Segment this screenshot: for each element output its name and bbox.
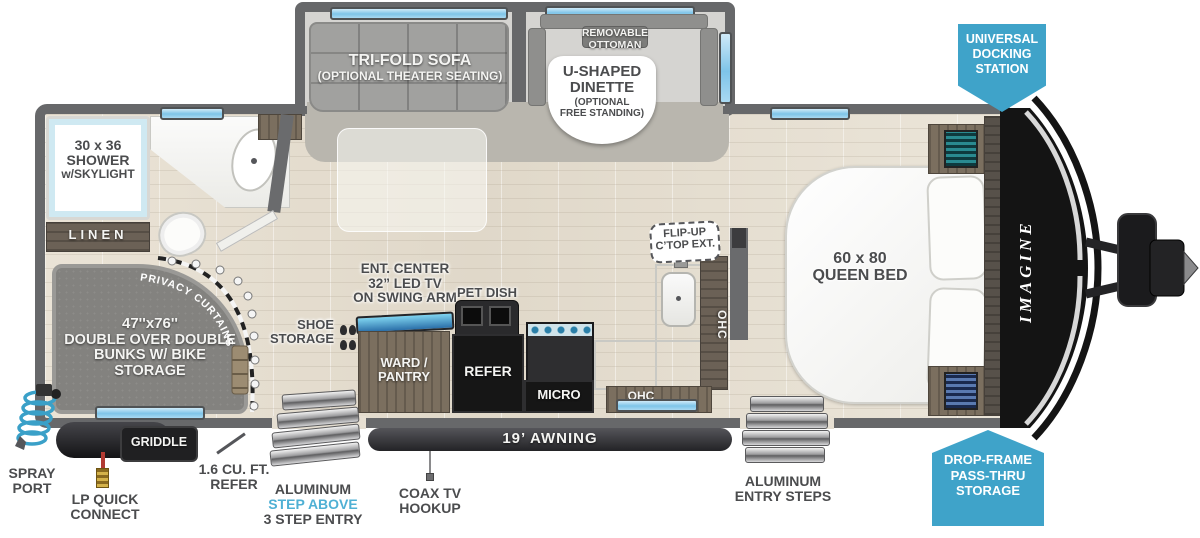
kitchen-window — [616, 399, 698, 412]
privacy-curtain-graphic: PRIVACY CURTAINS — [128, 252, 278, 422]
drop-frame-storage-badge: DROP-FRAMEPASS-THRUSTORAGE — [932, 430, 1044, 526]
shower-label: 30 x 36 SHOWER w/SKYLIGHT — [48, 138, 148, 181]
kitchen-sink-drain — [676, 296, 681, 301]
spray-port-mount — [36, 384, 52, 396]
living-area-rug — [337, 128, 487, 232]
queen-bed-label: 60 x 80 QUEEN BED — [800, 250, 920, 285]
linen-label: LINEN — [46, 228, 150, 242]
floorplan-canvas: REMOVABLEOTTOMAN TRI-FOLD SOFA (OPTIONAL… — [0, 0, 1200, 538]
awning-label: 19’ AWNING — [368, 431, 732, 448]
nightstand-top-shelf — [944, 130, 978, 168]
bed-pillow — [926, 175, 988, 281]
outdoor-refer-pointer — [216, 433, 246, 455]
refer-label: REFER — [452, 364, 524, 379]
shoe-storage-label: SHOESTORAGE — [268, 318, 334, 346]
dinette-bench-left — [528, 28, 546, 106]
sink-drain — [251, 158, 257, 164]
shoe-icon — [340, 340, 347, 350]
ottoman-label: REMOVABLEOTTOMAN — [560, 28, 670, 51]
svg-text:PRIVACY CURTAINS: PRIVACY CURTAINS — [139, 271, 235, 348]
dinette-window-side — [719, 32, 732, 104]
shoe-icon — [340, 325, 347, 335]
imagine-brand-logo: IMAGINE — [1016, 196, 1046, 346]
privacy-curtains-label: PRIVACY CURTAINS — [139, 271, 235, 348]
entry-steps-label: ALUMINUMENTRY STEPS — [730, 474, 836, 504]
sofa-label: TRI-FOLD SOFA (OPTIONAL THEATER SEATING) — [315, 52, 505, 83]
coax-line — [429, 451, 431, 475]
step-entry-label: ALUMINUM STEP ABOVE 3 STEP ENTRY — [252, 482, 374, 527]
shoe-icon — [349, 340, 356, 350]
pet-bowl — [461, 306, 483, 326]
shoe-icon — [349, 325, 356, 335]
dinette-bench-right — [700, 28, 718, 106]
pet-dish-label: PET DISH — [452, 286, 522, 300]
lp-quick-connect-fitting — [96, 468, 109, 488]
sofa-window — [330, 7, 508, 20]
griddle-label: GRIDDLE — [120, 436, 198, 450]
nightstand-bottom-shelf — [944, 372, 978, 410]
dinette-label: U-SHAPED DINETTE (OPTIONAL FREE STANDING… — [548, 64, 656, 120]
slideout-divider-wall — [512, 10, 526, 108]
ward-pantry-label: WARD /PANTRY — [358, 356, 450, 385]
flip-up-label: FLIP-UPC’TOP EXT. — [649, 226, 720, 253]
pet-bowl — [489, 306, 511, 326]
divider-wall-cap — [732, 228, 746, 248]
lp-quick-connect-label: LP QUICKCONNECT — [55, 492, 155, 522]
bathroom-window — [160, 107, 224, 120]
coax-label: COAX TVHOOKUP — [385, 486, 475, 516]
stove-burner-panel — [528, 324, 592, 336]
ohc-side-label: OHC — [700, 300, 728, 350]
bedroom-window — [770, 107, 850, 120]
coax-connector — [426, 473, 434, 481]
micro-label: MICRO — [524, 388, 594, 402]
